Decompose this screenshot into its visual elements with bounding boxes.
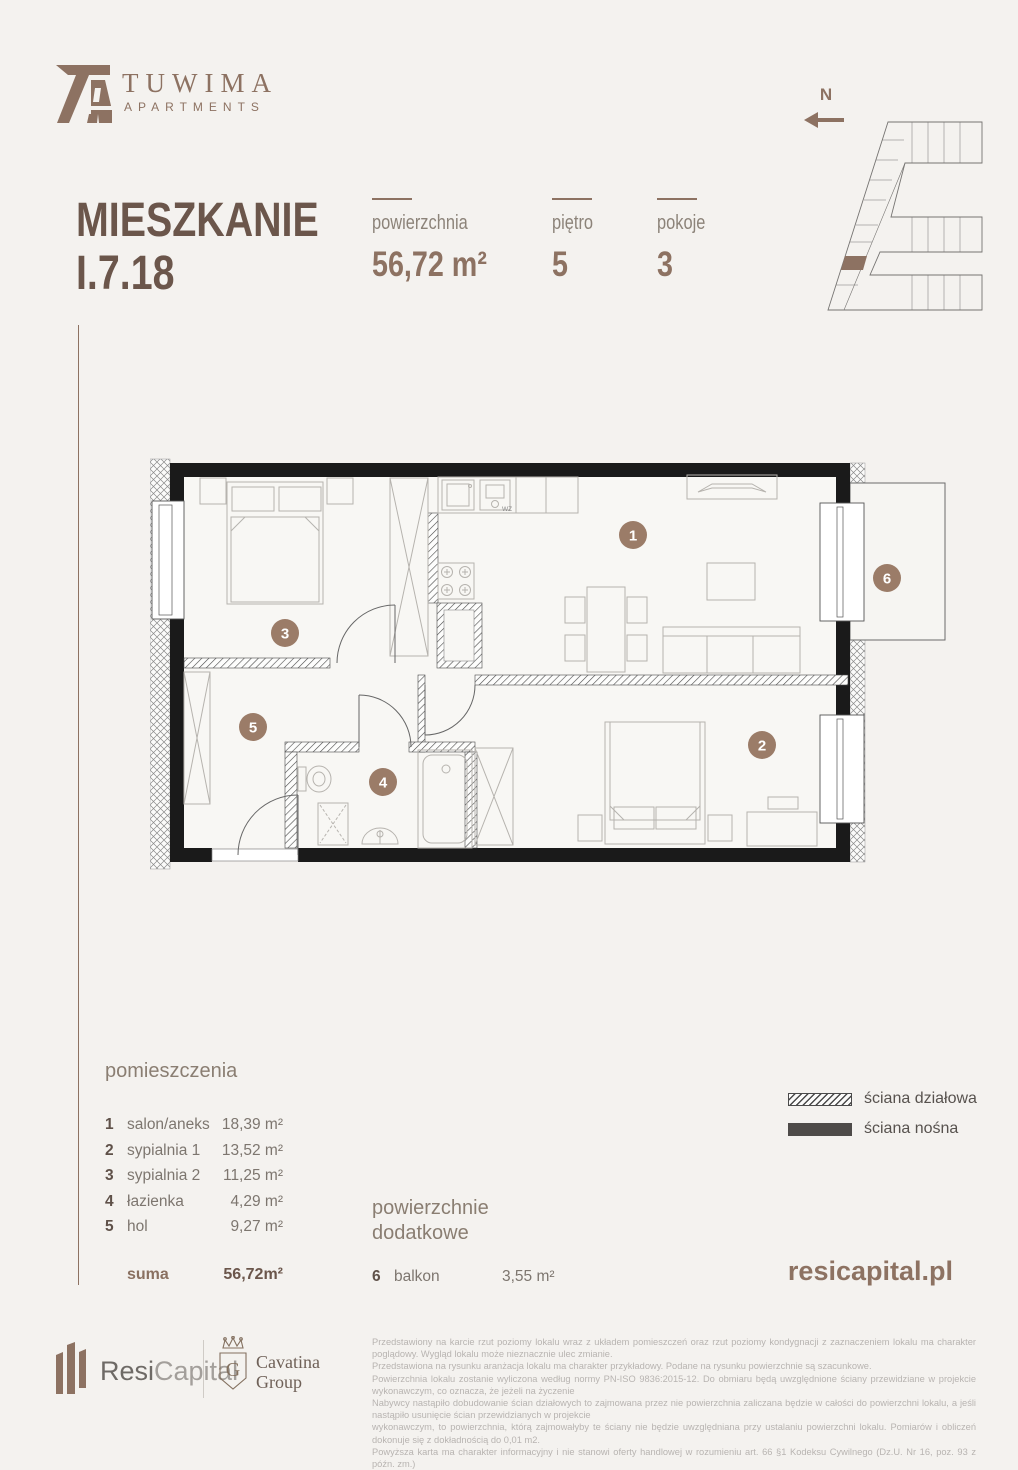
badge-room-1: 1 (619, 521, 647, 549)
extras-heading-line1: powierzchnie (372, 1197, 489, 1219)
stat-area-value: 56,72 m² (372, 245, 487, 285)
badge-room-5: 5 (239, 713, 267, 741)
vertical-rule (78, 325, 79, 1285)
badge-room-6: 6 (873, 564, 901, 592)
tuwima-logo-icon (55, 62, 113, 126)
cavatina-line2: Group (256, 1372, 302, 1392)
rooms-list: 1 salon/aneks 18,39 m² 2 sypialnia 1 13,… (105, 1112, 283, 1284)
cavatina-line1: Cavatina (256, 1352, 320, 1372)
svg-text:3: 3 (281, 626, 289, 643)
legend-label: ściana działowa (864, 1090, 977, 1108)
resicapital-logo-icon (55, 1338, 93, 1394)
room-name: hol (127, 1214, 230, 1240)
extras-heading-line2: dodatkowe (372, 1222, 469, 1244)
stat-rooms: pokoje 3 (657, 198, 807, 285)
room-name: sypialnia 2 (127, 1163, 223, 1189)
extras-heading: powierzchnie dodatkowe (372, 1196, 489, 1246)
legend-item: ściana działowa (788, 1090, 977, 1108)
room-name: łazienka (127, 1189, 230, 1215)
brand-subtitle: APARTMENTS (124, 100, 265, 114)
disclaimer-line: Powyższa karta ma charakter informacyjny… (372, 1446, 976, 1470)
disclaimer-line: Przedstawiona na rysunku aranżacja lokal… (372, 1360, 976, 1372)
building-locator: N (792, 70, 1010, 318)
stat-area: powierzchnia 56,72 m² (372, 198, 522, 285)
building-outline (828, 122, 982, 310)
svg-text:2: 2 (758, 738, 766, 755)
title-line1: MIESZKANIE (76, 194, 319, 247)
legal-disclaimer: Przedstawiony na karcie rzut poziomy lok… (372, 1336, 976, 1470)
badge-room-2: 2 (748, 731, 776, 759)
room-no: 4 (105, 1189, 127, 1215)
room-no: 5 (105, 1214, 127, 1240)
svg-text:1: 1 (629, 528, 637, 545)
svg-text:6: 6 (883, 571, 891, 588)
unit-location-marker (841, 256, 867, 270)
resi-dark: Resi (100, 1356, 154, 1386)
room-list-item: 2 sypialnia 1 13,52 m² (105, 1138, 283, 1164)
extras-item: 6 balkon 3,55 m² (372, 1268, 562, 1286)
room-list-item: 1 salon/aneks 18,39 m² (105, 1112, 283, 1138)
room-area: 18,39 m² (222, 1112, 283, 1138)
cavatina-wordmark: Cavatina Group (256, 1352, 320, 1392)
stat-rule (657, 198, 697, 200)
solid-wall-swatch (788, 1123, 852, 1136)
shaft-alcove (444, 610, 474, 661)
north-arrow-icon (804, 112, 844, 128)
disclaimer-line: Nabywcy nastąpiło dobudowanie ścian dzia… (372, 1397, 976, 1421)
disclaimer-line: Powierzchnia lokalu zostanie wyliczona w… (372, 1373, 976, 1397)
stat-rooms-label: pokoje (657, 212, 705, 235)
room-list-item: 3 sypialnia 2 11,25 m² (105, 1163, 283, 1189)
room-no: 2 (105, 1138, 127, 1164)
stat-floor-label: piętro (552, 212, 593, 235)
sum-label: suma (127, 1266, 223, 1284)
svg-text:5: 5 (249, 720, 257, 737)
hatched-wall-swatch (788, 1093, 852, 1106)
north-label: N (820, 85, 832, 104)
room-list-item: 5 hol 9,27 m² (105, 1214, 283, 1240)
page-title: MIESZKANIE I.7.18 (76, 194, 372, 300)
room-no: 1 (105, 1112, 127, 1138)
badge-room-4: 4 (369, 768, 397, 796)
svg-text:4: 4 (379, 775, 388, 792)
website-link[interactable]: resicapital.pl (700, 1256, 953, 1287)
extra-area: 3,55 m² (502, 1268, 562, 1286)
wz-label: WZ (502, 506, 512, 513)
stat-rooms-value: 3 (657, 245, 673, 285)
cavatina-initial: G (226, 1359, 240, 1381)
stat-floor-value: 5 (552, 245, 568, 285)
sum-value: 56,72m² (223, 1266, 283, 1284)
badge-room-3: 3 (271, 619, 299, 647)
title-line2: I.7.18 (76, 247, 174, 300)
room-no: 3 (105, 1163, 127, 1189)
cavatina-logo-icon: G (216, 1336, 250, 1394)
brand-name: TUWIMA (122, 68, 278, 99)
legend-label: ściana nośna (864, 1120, 958, 1138)
floor-plan: WZ 1 2 3 4 5 6 (150, 455, 950, 875)
room-area: 11,25 m² (223, 1163, 283, 1189)
extra-no: 6 (372, 1268, 394, 1286)
room-area: 13,52 m² (222, 1138, 283, 1164)
wall-legend: ściana działowa ściana nośna (788, 1090, 977, 1150)
footer-divider (203, 1340, 204, 1398)
disclaimer-line: wykonawczym, to powierzchnia, którą zajm… (372, 1421, 976, 1445)
room-name: salon/aneks (127, 1112, 222, 1138)
legend-item: ściana nośna (788, 1120, 977, 1138)
room-name: sypialnia 1 (127, 1138, 222, 1164)
room-area: 9,27 m² (230, 1214, 283, 1240)
stat-rule (552, 198, 592, 200)
stat-rule (372, 198, 412, 200)
rooms-sum-row: suma 56,72m² (105, 1266, 283, 1284)
room-list-item: 4 łazienka 4,29 m² (105, 1189, 283, 1215)
entry-threshold (212, 849, 298, 861)
stat-area-label: powierzchnia (372, 212, 468, 235)
rooms-heading: pomieszczenia (105, 1060, 237, 1083)
disclaimer-line: Przedstawiony na karcie rzut poziomy lok… (372, 1336, 976, 1360)
extra-name: balkon (394, 1268, 502, 1286)
room-area: 4,29 m² (230, 1189, 283, 1215)
